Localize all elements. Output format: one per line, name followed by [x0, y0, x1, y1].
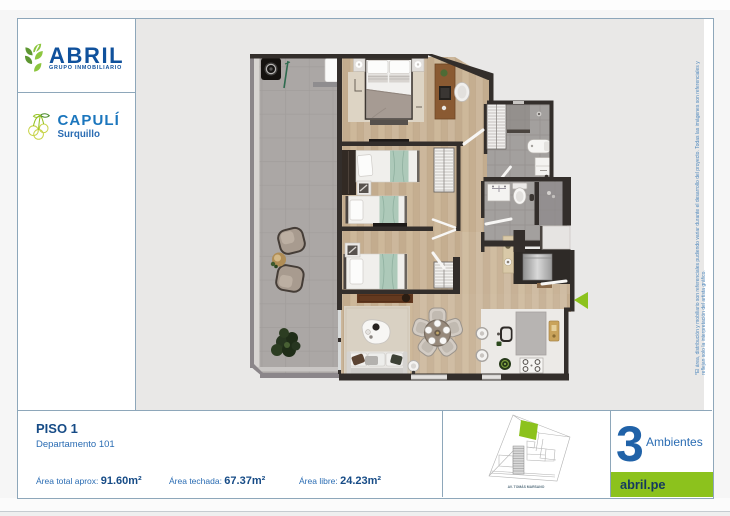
svg-text:AV. TOMÁS MARSANO: AV. TOMÁS MARSANO — [508, 484, 545, 489]
